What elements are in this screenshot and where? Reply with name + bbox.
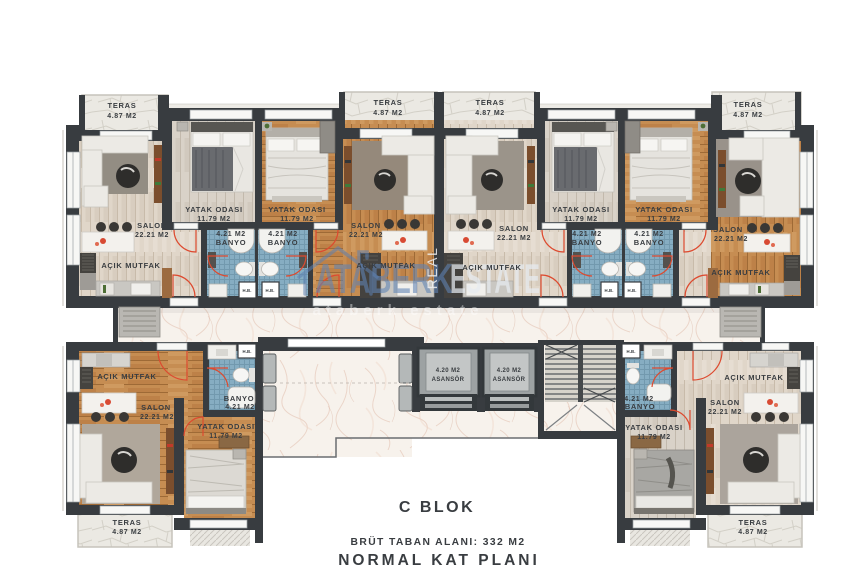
svg-text:22.21 M2: 22.21 M2 [497,235,531,242]
svg-text:YATAK ODASI: YATAK ODASI [635,205,693,214]
svg-text:BANYO: BANYO [572,238,603,247]
svg-text:4.20 M2: 4.20 M2 [497,368,522,374]
svg-text:BANYO: BANYO [224,394,255,403]
svg-text:ASANSÖR: ASANSÖR [432,376,465,383]
svg-text:AÇIK MUTFAK: AÇIK MUTFAK [97,372,156,381]
svg-text:H.B.: H.B. [628,288,637,293]
svg-text:SALON: SALON [499,224,529,233]
svg-text:22.21 M2: 22.21 M2 [140,414,174,421]
svg-text:YATAK ODASI: YATAK ODASI [185,205,243,214]
svg-text:22.21 M2: 22.21 M2 [714,236,748,243]
svg-text:YATAK ODASI: YATAK ODASI [268,205,326,214]
svg-text:4.87 M2: 4.87 M2 [373,110,403,117]
svg-text:4.21 M2: 4.21 M2 [216,231,246,238]
svg-text:22.21 M2: 22.21 M2 [349,232,383,239]
svg-text:11.79 M2: 11.79 M2 [280,216,314,223]
svg-text:BANYO: BANYO [216,238,247,247]
svg-text:BRÜT TABAN ALANI: 332 M2: BRÜT TABAN ALANI: 332 M2 [351,535,526,548]
svg-text:BANYO: BANYO [634,238,665,247]
svg-text:NORMAL KAT PLANI: NORMAL KAT PLANI [338,552,540,566]
svg-text:SALON: SALON [713,225,743,234]
svg-text:11.79 M2: 11.79 M2 [647,216,681,223]
svg-text:SALON: SALON [710,398,740,407]
svg-text:C BLOK: C BLOK [399,499,475,516]
svg-text:11.79 M2: 11.79 M2 [197,216,231,223]
svg-text:ataberk estate: ataberk estate [313,302,484,319]
svg-text:REAL: REAL [424,247,440,290]
svg-text:SALON: SALON [141,403,171,412]
svg-text:AÇIK MUTFAK: AÇIK MUTFAK [101,261,160,270]
svg-text:YATAK ODASI: YATAK ODASI [552,205,610,214]
svg-text:H.B.: H.B. [243,288,252,293]
svg-text:22.21 M2: 22.21 M2 [708,409,742,416]
svg-text:11.79 M2: 11.79 M2 [637,434,671,441]
svg-text:AÇIK MUTFAK: AÇIK MUTFAK [724,373,783,382]
svg-text:11.79 M2: 11.79 M2 [209,433,243,440]
svg-text:TERAS: TERAS [739,518,768,527]
svg-text:ASANSÖR: ASANSÖR [493,376,526,383]
svg-text:TERAS: TERAS [476,98,505,107]
svg-text:TERAS: TERAS [374,98,403,107]
svg-text:H.B.: H.B. [243,349,252,354]
svg-text:BANYO: BANYO [625,402,656,411]
svg-text:TERAS: TERAS [113,518,142,527]
svg-text:4.87 M2: 4.87 M2 [112,529,142,536]
svg-text:11.79 M2: 11.79 M2 [564,216,598,223]
svg-text:AÇIK MUTFAK: AÇIK MUTFAK [356,261,415,270]
svg-text:4.87 M2: 4.87 M2 [733,112,763,119]
svg-text:4.21 M2: 4.21 M2 [225,404,255,411]
svg-text:4.20 M2: 4.20 M2 [436,368,461,374]
svg-text:4.21 M2: 4.21 M2 [268,231,298,238]
svg-text:YATAK ODASI: YATAK ODASI [197,422,255,431]
svg-text:H.B.: H.B. [627,349,636,354]
svg-text:AÇIK MUTFAK: AÇIK MUTFAK [462,263,521,272]
svg-text:4.87 M2: 4.87 M2 [107,113,137,120]
svg-text:H.B.: H.B. [605,288,614,293]
svg-text:SALON: SALON [137,221,167,230]
svg-text:4.87 M2: 4.87 M2 [475,110,505,117]
svg-text:22.21 M2: 22.21 M2 [135,232,169,239]
svg-text:4.21 M2: 4.21 M2 [634,231,664,238]
svg-text:SALON: SALON [351,221,381,230]
svg-text:BANYO: BANYO [268,238,299,247]
svg-text:AÇIK MUTFAK: AÇIK MUTFAK [711,268,770,277]
svg-text:YATAK ODASI: YATAK ODASI [625,423,683,432]
svg-text:4.21 M2: 4.21 M2 [572,231,602,238]
svg-text:H.B.: H.B. [266,288,275,293]
svg-text:4.87 M2: 4.87 M2 [738,529,768,536]
svg-text:TERAS: TERAS [734,100,763,109]
svg-text:TERAS: TERAS [108,101,137,110]
